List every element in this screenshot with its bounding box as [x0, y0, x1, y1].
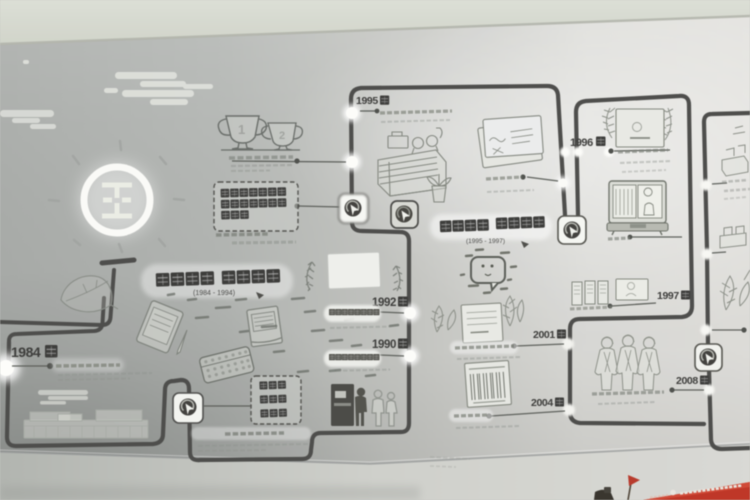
svg-text:2008: 2008 [676, 375, 698, 387]
svg-text:1990: 1990 [372, 339, 396, 351]
svg-text:(1995 - 1997): (1995 - 1997) [466, 238, 505, 245]
svg-text:2004: 2004 [531, 397, 553, 409]
svg-text:2001: 2001 [533, 329, 555, 341]
svg-text:(1984 - 1994): (1984 - 1994) [193, 290, 235, 297]
svg-text:1984: 1984 [11, 344, 41, 360]
svg-text:1995: 1995 [356, 95, 378, 107]
svg-text:1: 1 [238, 122, 245, 137]
svg-text:1997: 1997 [657, 290, 679, 302]
svg-text:1996: 1996 [570, 137, 593, 149]
svg-text:2: 2 [279, 130, 285, 142]
